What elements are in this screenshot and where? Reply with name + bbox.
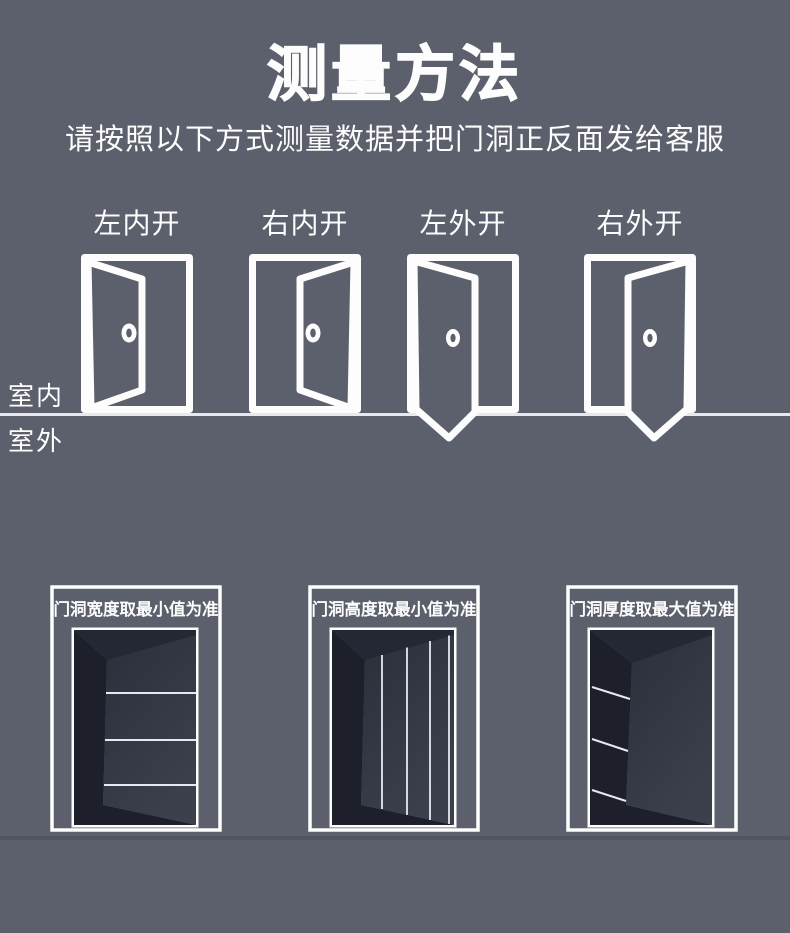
measurement-panel-width: 门洞宽度取最小值为准 [50,585,222,832]
door-type-label-left-inward: 左内开 [79,202,195,242]
page-subtitle: 请按照以下方式测量数据并把门洞正反面发给客服 [0,116,790,158]
door-diagram-left-outward-icon [405,252,521,448]
indoor-label: 室内 [8,376,64,413]
door-type-label-right-outward: 右外开 [582,202,698,242]
panel-label-thickness: 门洞厚度取最大值为准 [570,599,736,619]
floor-shadow-line [0,836,790,840]
door-type-label-left-outward: 左外开 [405,202,521,242]
measurement-panel-height: 门洞高度取最小值为准 [308,585,480,832]
door-type-label-right-inward: 右内开 [247,202,363,242]
page-title: 测量方法 [0,26,790,113]
panel-label-width: 门洞宽度取最小值为准 [54,599,220,619]
outdoor-label: 室外 [8,421,64,458]
door-diagram-right-inward-icon [247,252,363,448]
measurement-guide-infographic: 测量方法 请按照以下方式测量数据并把门洞正反面发给客服 左内开 右内开 左外开 … [0,0,790,933]
panel-label-height: 门洞高度取最小值为准 [312,599,478,619]
measurement-panel-thickness: 门洞厚度取最大值为准 [566,585,738,832]
door-diagram-left-inward-icon [79,252,195,448]
door-diagram-right-outward-icon [582,252,698,448]
